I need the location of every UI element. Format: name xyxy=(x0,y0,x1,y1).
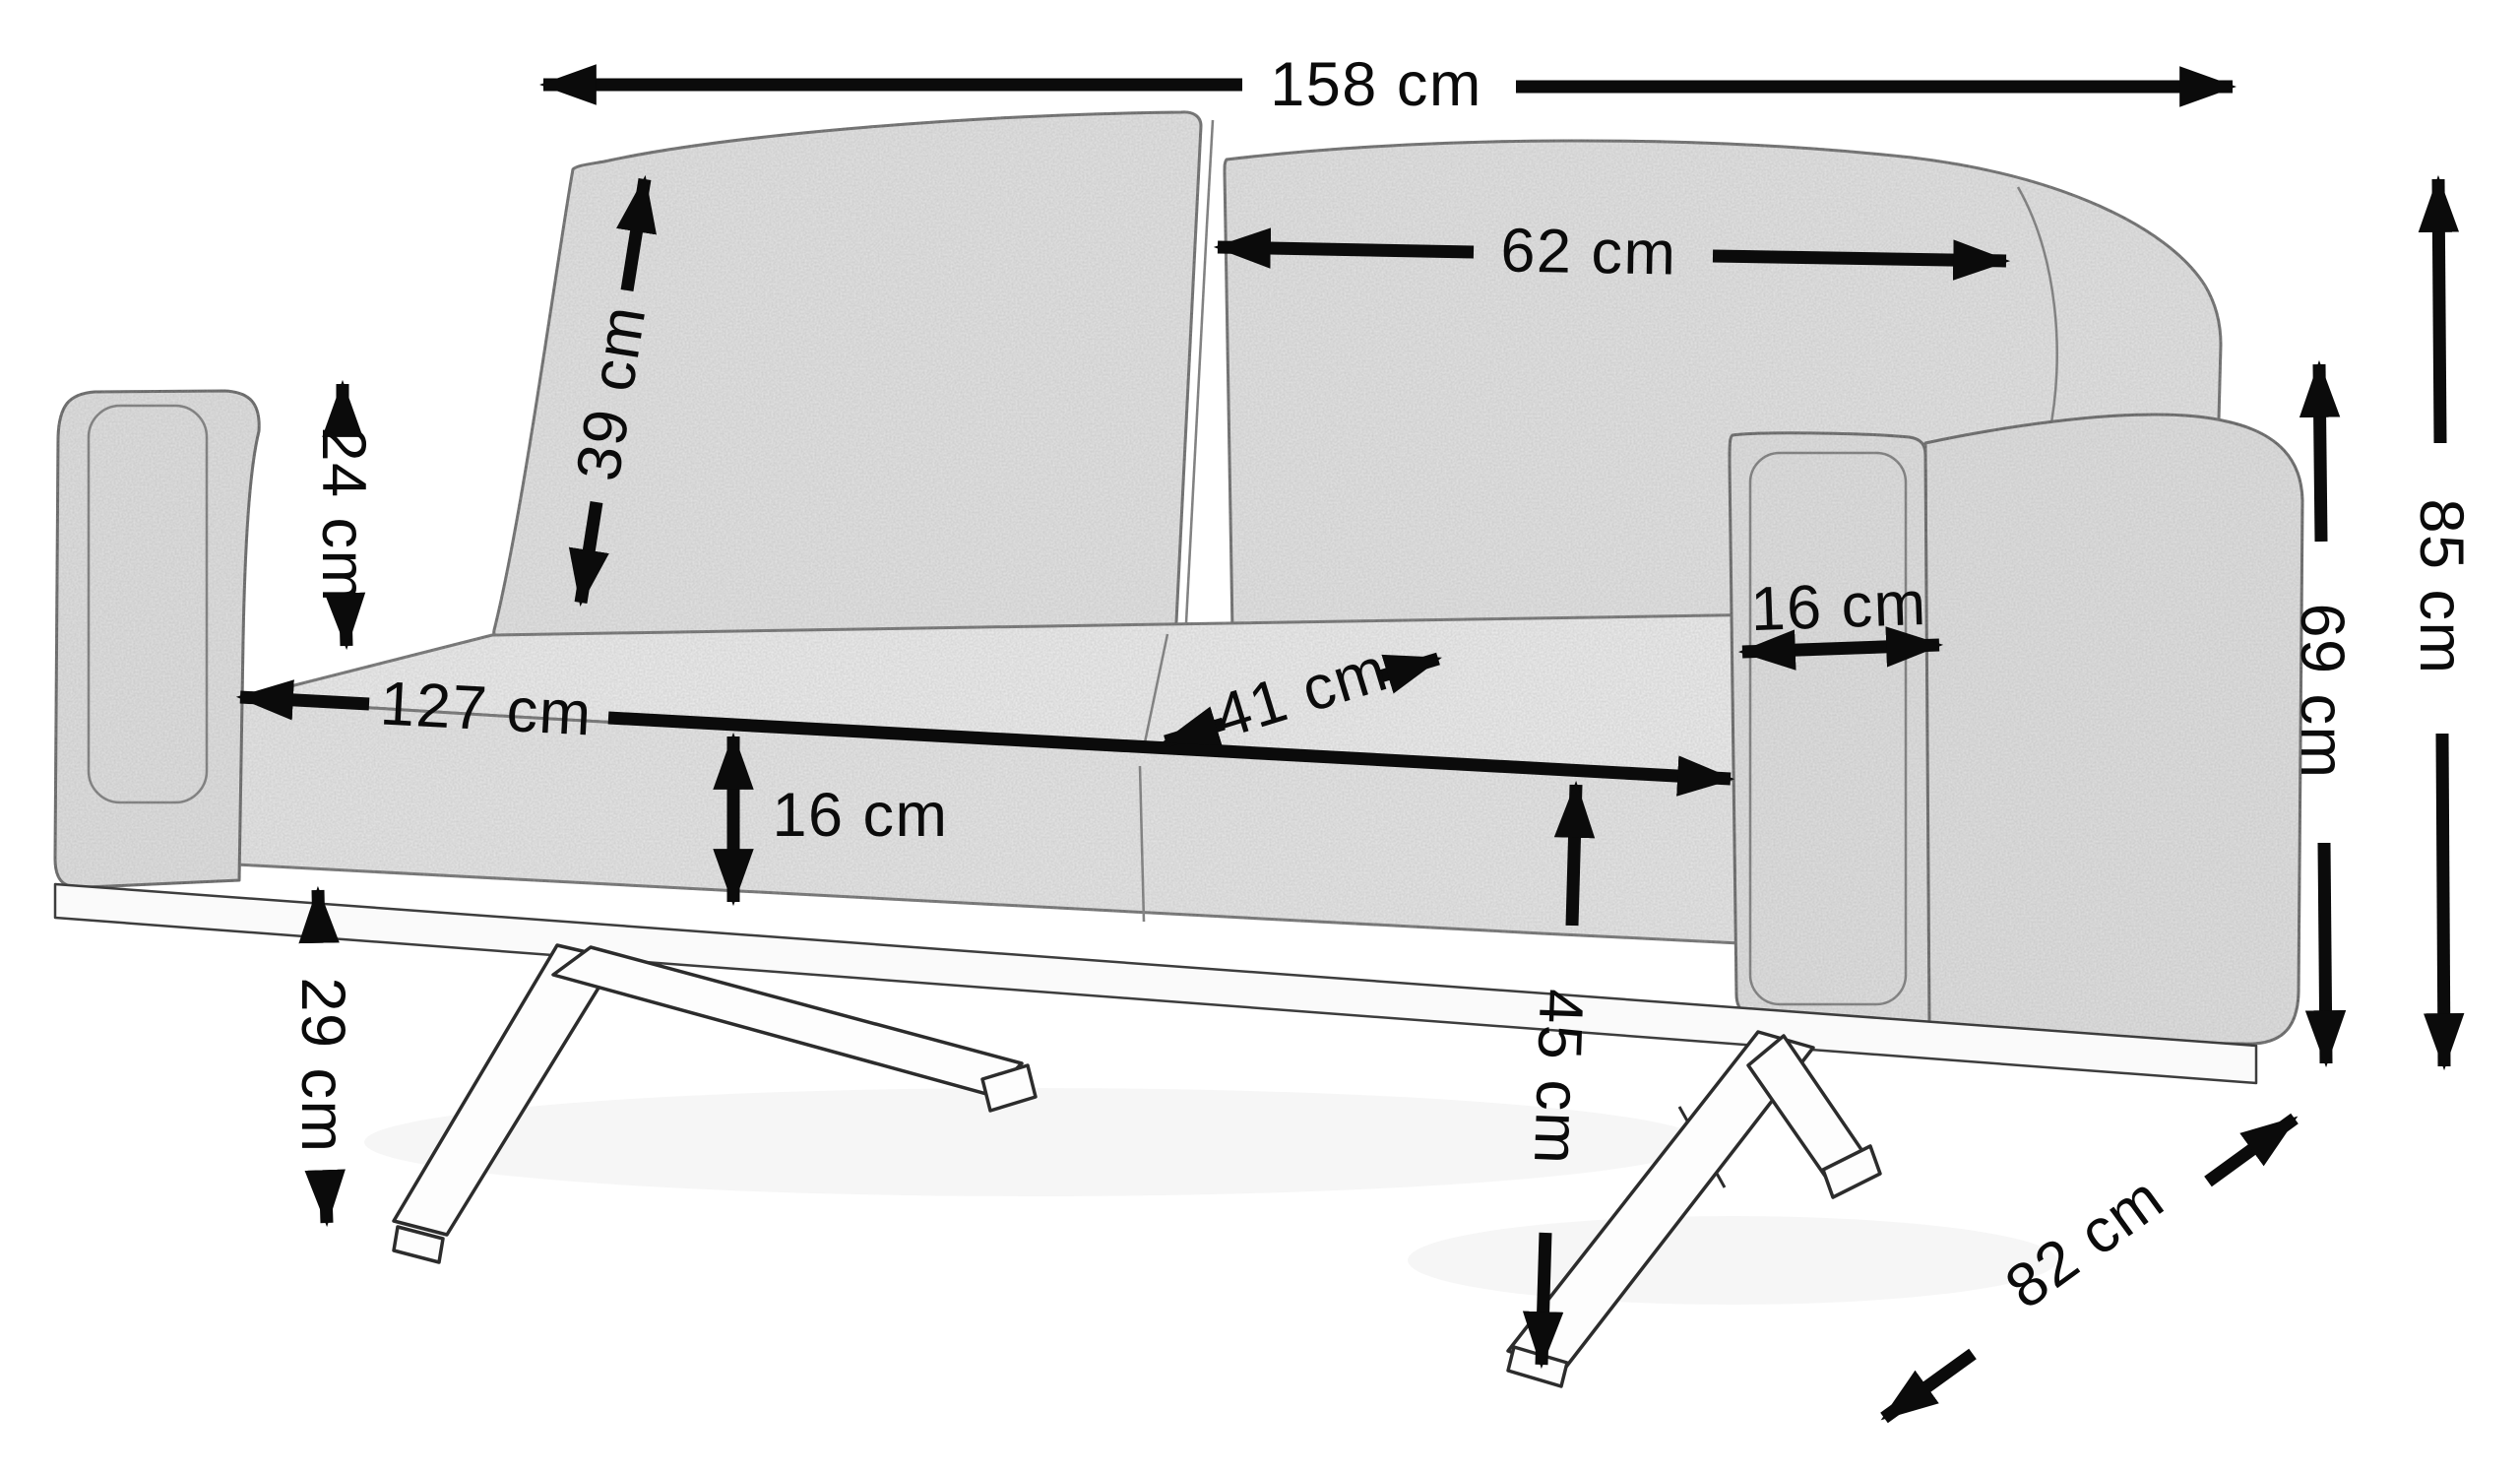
label-total-height: 85 cm xyxy=(2407,498,2476,674)
label-armrest-width: 16 cm xyxy=(1749,569,1927,644)
armrest-left xyxy=(55,391,259,887)
label-backrest-cushion-width: 62 cm xyxy=(1500,216,1677,288)
dimension-armrest-width xyxy=(1742,645,1939,652)
armrest-right-body xyxy=(1925,415,2302,1044)
label-seat-cushion-thickness: 16 cm xyxy=(772,781,948,850)
sofa-upholstery xyxy=(55,112,2302,1044)
label-seat-height: 45 cm xyxy=(1521,988,1596,1166)
front-left-leg-outer xyxy=(394,945,616,1235)
label-seat-width: 127 cm xyxy=(379,669,595,748)
label-total-width: 158 cm xyxy=(1270,50,1482,119)
armrest-right-front xyxy=(1730,433,1929,1042)
label-armrest-height: 69 cm xyxy=(2288,603,2357,779)
sofa-dimension-diagram: 158 cm 62 cm 39 cm 24 cm 127 cm 41 cm 16… xyxy=(0,0,2520,1473)
label-underframe-clearance: 29 cm xyxy=(288,977,357,1153)
label-armrest-height-above-seat: 24 cm xyxy=(309,426,378,603)
